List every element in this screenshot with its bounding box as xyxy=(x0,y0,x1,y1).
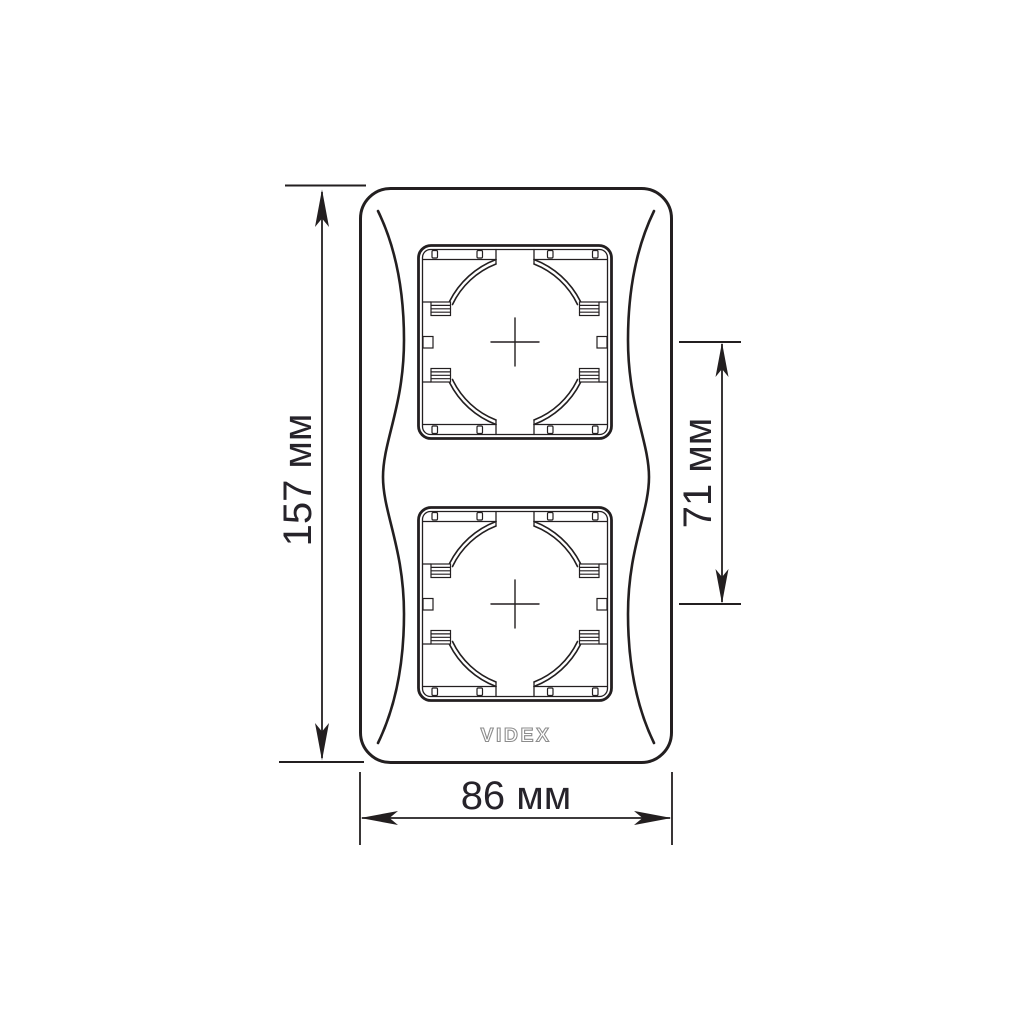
drawing-canvas: VIDEX 157 мм 71 мм 86 мм xyxy=(0,0,1024,1024)
videx-logo: VIDEX xyxy=(480,725,551,747)
width-label: 86 мм xyxy=(461,774,572,818)
height-label: 157 мм xyxy=(276,414,320,547)
spacing-label: 71 мм xyxy=(676,418,720,529)
technical-drawing: VIDEX 157 мм 71 мм 86 мм xyxy=(0,0,1024,1024)
